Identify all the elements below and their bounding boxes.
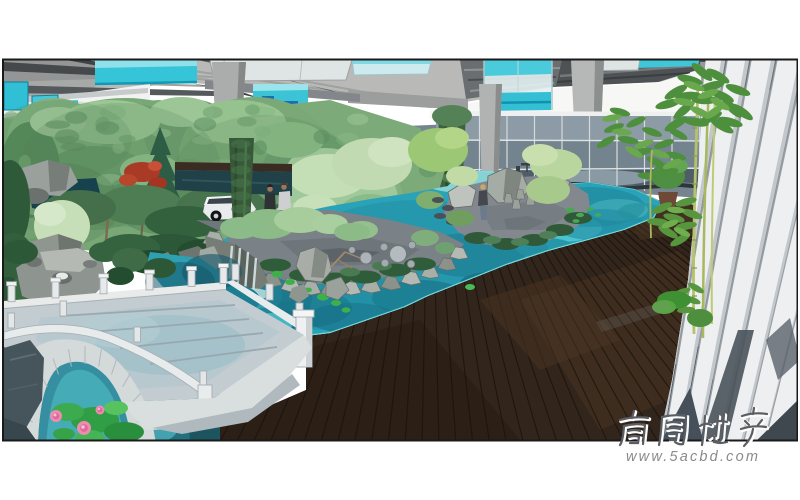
svg-text:www.5acbd.com: www.5acbd.com	[626, 449, 760, 465]
